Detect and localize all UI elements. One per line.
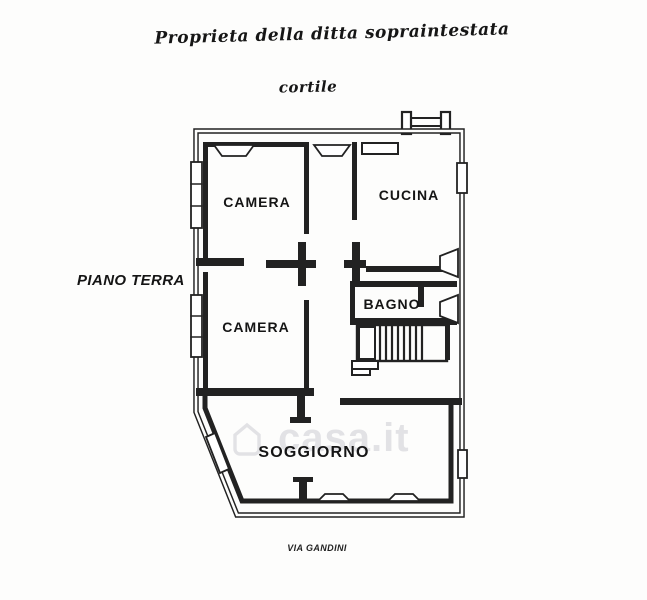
street-label: VIA GANDINI [287,543,347,553]
room-label-cucina: CUCINA [379,187,439,203]
room-label-camera-top: CAMERA [223,194,290,210]
staircase [352,325,447,375]
floorplan-page: casa.it Proprieta della ditta sopraintes… [0,0,647,600]
room-label-bagno: BAGNO [363,296,420,312]
courtyard-label: cortile [279,77,338,96]
room-label-soggiorno: SOGGIORNO [258,444,369,462]
floor-label: PIANO TERRA [77,272,185,289]
room-label-camera-middle: CAMERA [222,319,289,335]
